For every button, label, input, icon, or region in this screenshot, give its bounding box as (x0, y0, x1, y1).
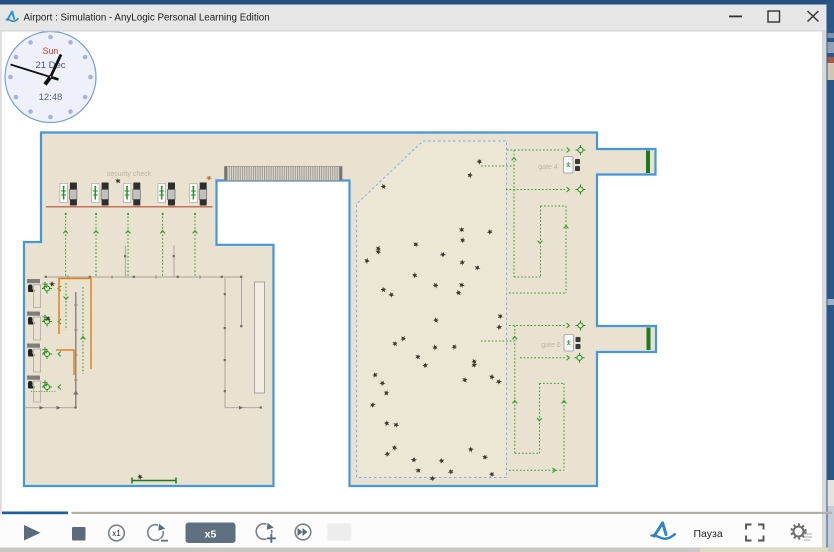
svg-text:x1: x1 (112, 529, 121, 538)
svg-text:security check: security check (107, 171, 152, 178)
svg-text:Пауза: Пауза (694, 528, 723, 540)
svg-text:21 Dec: 21 Dec (35, 60, 65, 71)
svg-text:12:48: 12:48 (39, 92, 63, 103)
svg-text:Airport : Simulation - AnyLogi: Airport : Simulation - AnyLogic Personal… (24, 13, 270, 24)
svg-text:x5: x5 (205, 529, 217, 541)
svg-text:gate 4: gate 4 (538, 164, 558, 171)
svg-text:gate 6: gate 6 (541, 342, 561, 349)
svg-text:Sun: Sun (43, 46, 59, 56)
